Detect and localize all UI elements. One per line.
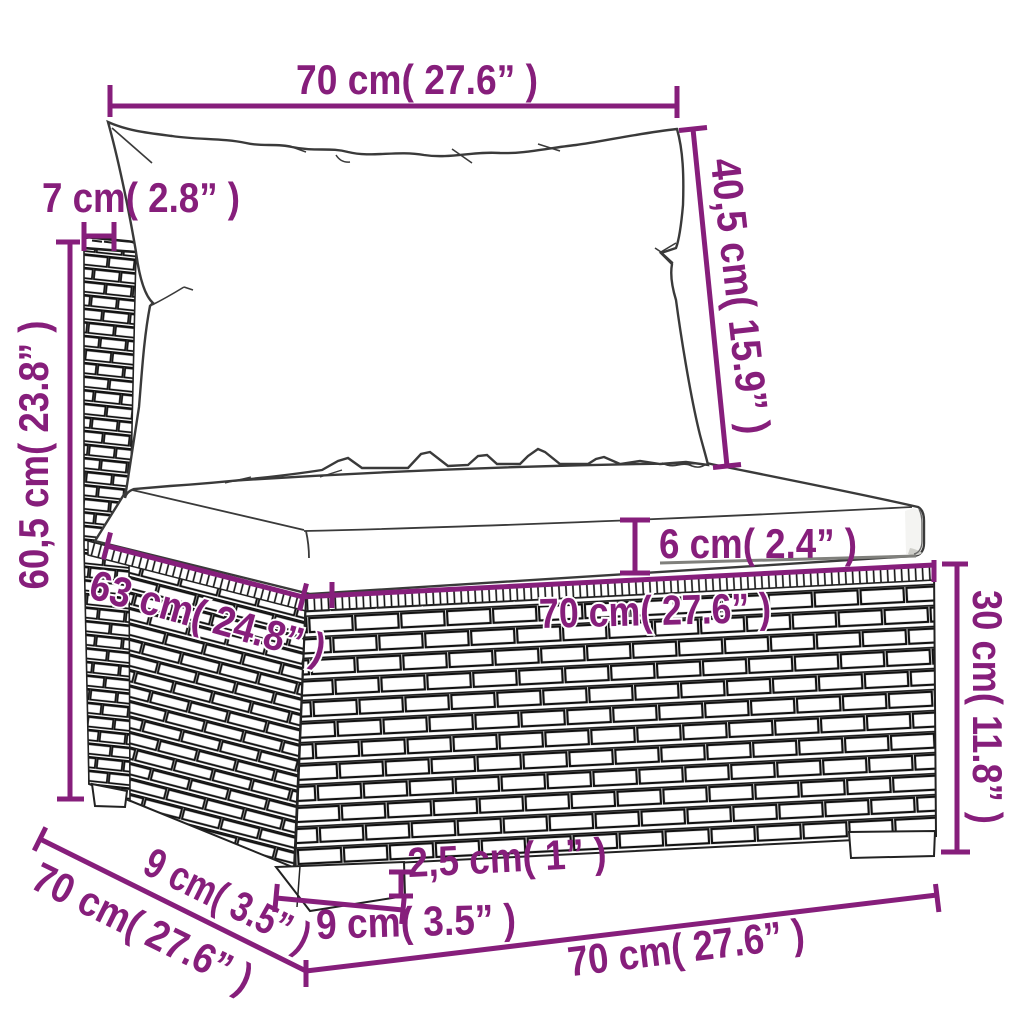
- svg-text:6 cm( 2.4” ): 6 cm( 2.4” ): [659, 520, 857, 567]
- svg-text:30 cm( 11.8” ): 30 cm( 11.8” ): [964, 590, 1011, 824]
- svg-text:60,5 cm( 23.8” ): 60,5 cm( 23.8” ): [10, 321, 57, 590]
- svg-text:9 cm( 3.5” ): 9 cm( 3.5” ): [315, 895, 516, 948]
- svg-text:70 cm( 27.6” ): 70 cm( 27.6” ): [296, 56, 538, 103]
- svg-text:7 cm( 2.8” ): 7 cm( 2.8” ): [42, 174, 240, 221]
- svg-text:70 cm( 27.6” ): 70 cm( 27.6” ): [538, 584, 771, 637]
